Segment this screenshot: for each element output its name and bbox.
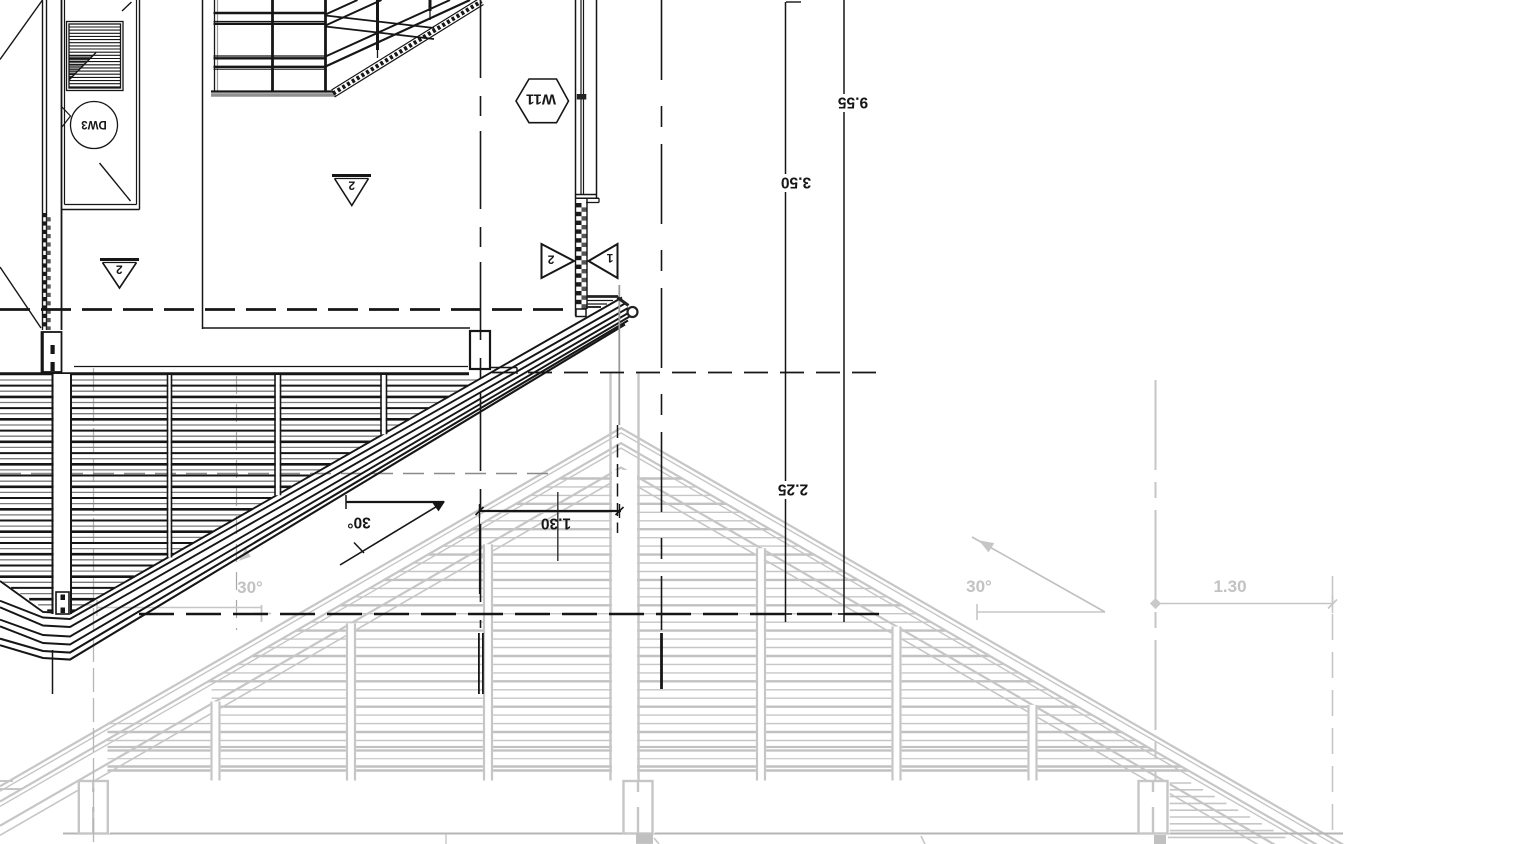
svg-text:DW3: DW3 [81,118,107,130]
svg-text:W11: W11 [526,91,556,108]
svg-text:30°: 30° [237,578,263,597]
svg-text:30°: 30° [966,577,992,596]
svg-text:9.55: 9.55 [838,94,869,111]
svg-text:1: 1 [606,251,613,265]
svg-text:2: 2 [547,253,554,267]
svg-text:3.50: 3.50 [781,174,811,191]
svg-text:30°: 30° [347,514,370,531]
svg-text:2.25: 2.25 [778,481,809,498]
svg-text:1.30: 1.30 [541,515,571,532]
svg-text:2: 2 [348,179,355,193]
svg-text:2: 2 [116,263,123,277]
svg-text:1.30: 1.30 [1213,577,1246,596]
